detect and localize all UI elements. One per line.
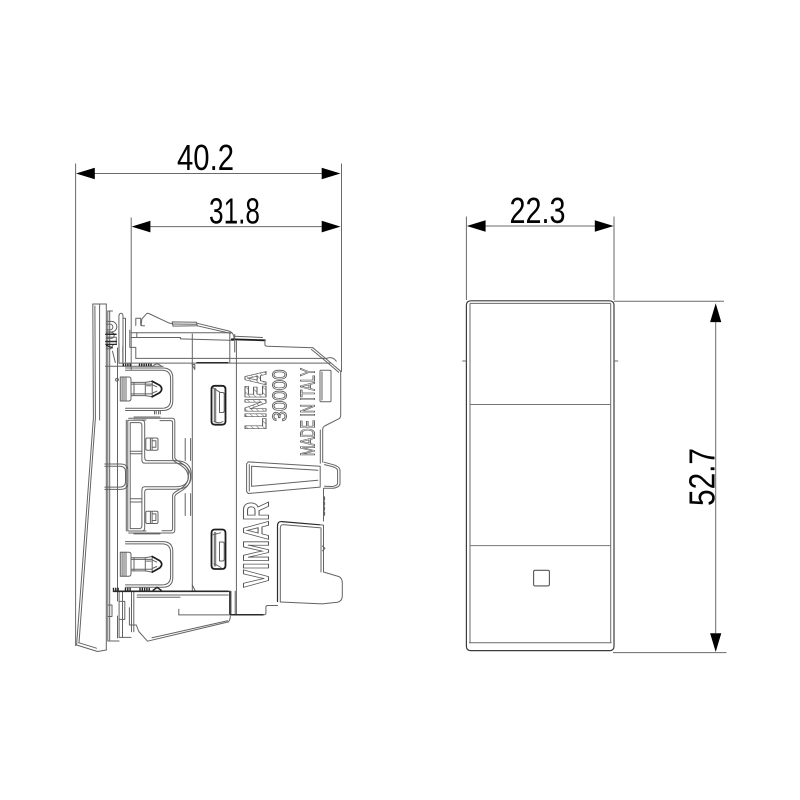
svg-text:22.3: 22.3	[510, 190, 566, 231]
svg-text:30000: 30000	[269, 370, 292, 422]
svg-text:MADE IN ITALY: MADE IN ITALY	[298, 368, 320, 456]
svg-text:40.2: 40.2	[177, 137, 234, 178]
svg-text:31.8: 31.8	[209, 190, 260, 231]
svg-text:VIMAR: VIMAR	[236, 502, 277, 588]
svg-text:52.7: 52.7	[682, 448, 723, 506]
